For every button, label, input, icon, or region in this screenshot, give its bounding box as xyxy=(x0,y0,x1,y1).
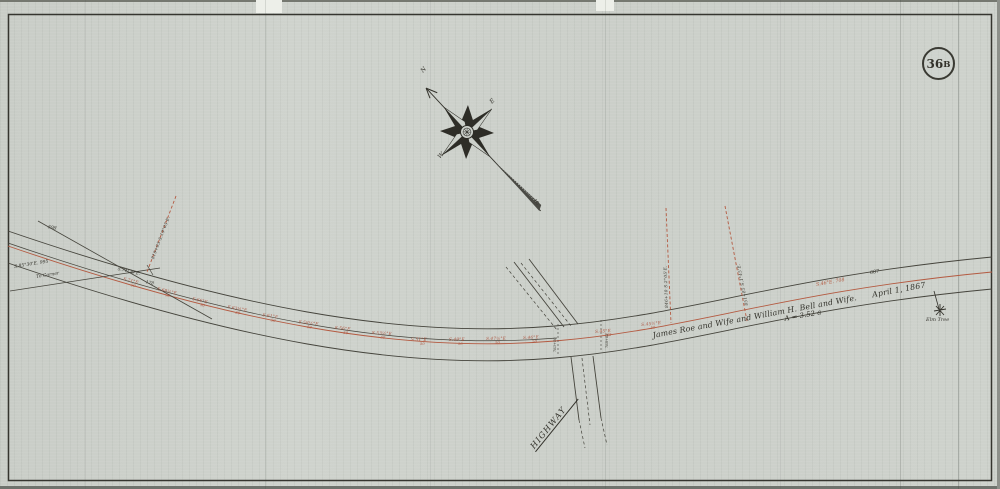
station-distance: 50 xyxy=(458,342,465,346)
highway-edge xyxy=(571,357,579,420)
plat-linework xyxy=(0,0,1000,489)
crossing-station-label: 768+02 xyxy=(605,334,609,348)
sheet-number: 36 xyxy=(927,57,944,71)
offset-lines xyxy=(147,196,747,323)
station-call: S.53½°E50 xyxy=(372,330,392,340)
survey-plat-sheet: 36B N E W S James Roe and Wife and Willi… xyxy=(0,0,1000,489)
elm-tree-glyph xyxy=(934,304,946,316)
compass-arrowhead xyxy=(423,85,437,99)
station-call: S.56°E50 xyxy=(334,325,350,335)
station-call: S.46°E50 xyxy=(523,334,539,343)
elm-tree-label: Elm Tree xyxy=(926,318,949,323)
station-distance: 50 xyxy=(495,340,506,344)
sheet-number-suffix: B xyxy=(943,60,950,70)
crossing-station-label: 763+50 xyxy=(553,338,557,352)
sheet-number-badge: 36B xyxy=(922,47,955,80)
compass-rose xyxy=(401,65,565,234)
station-call: S.47½°E50 xyxy=(486,336,506,345)
station-call: S.51°E50 xyxy=(411,337,427,346)
station-distance: 50 xyxy=(532,339,539,343)
highway-dashed-line xyxy=(579,418,607,448)
station-call: S.45°E762 xyxy=(595,328,612,338)
highway-dashed-line xyxy=(582,358,590,425)
highway-edge xyxy=(593,356,601,418)
station-call: S.49°E50 xyxy=(449,337,465,346)
station-distance: 50 xyxy=(420,342,427,346)
